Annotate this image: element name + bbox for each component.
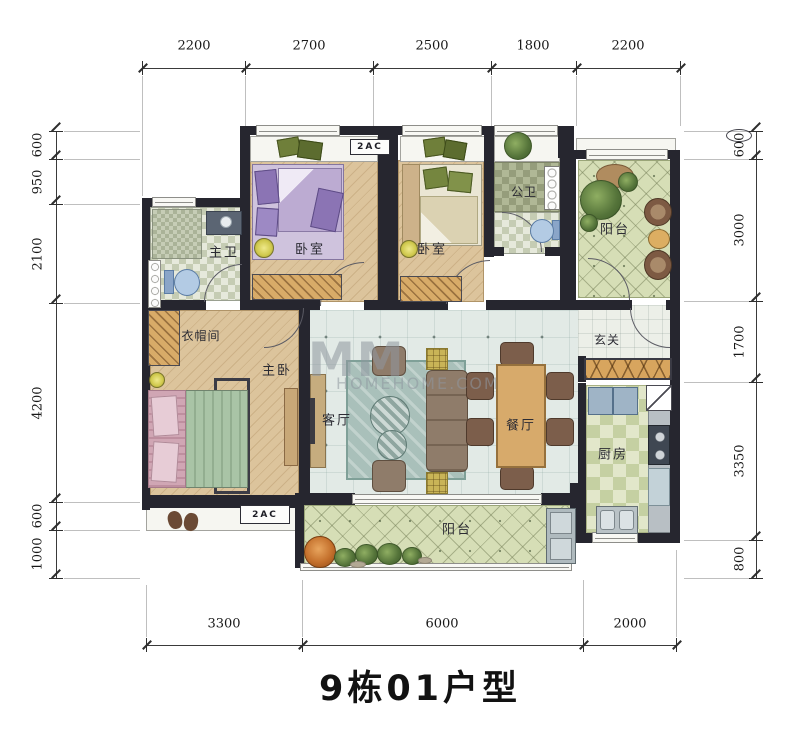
dim-line-top <box>142 68 680 69</box>
dim-extension <box>684 540 750 541</box>
stool-icon <box>254 238 274 258</box>
dim-tick <box>373 61 374 75</box>
dim-left-5: 600 <box>31 504 46 529</box>
dim-tick <box>245 61 246 75</box>
sink-basin-icon <box>600 510 615 530</box>
dim-extension <box>684 578 750 579</box>
dim-bottom-3: 2000 <box>613 617 646 632</box>
dining-chair <box>500 342 534 366</box>
watermark-site: HOMEHOME.COM <box>336 374 500 393</box>
dim-top-4: 1800 <box>516 39 549 54</box>
dim-tick <box>49 131 63 132</box>
label-cloakroom: 衣帽间 <box>181 330 220 342</box>
wall-segment <box>558 126 574 158</box>
dim-tick <box>680 61 681 75</box>
wall-segment <box>486 300 564 310</box>
wall-segment <box>484 126 494 257</box>
dim-left-6: 1000 <box>31 537 46 570</box>
dim-right-5: 800 <box>733 547 748 572</box>
dim-left-3: 2100 <box>31 237 46 270</box>
toilet-icon <box>530 219 554 243</box>
dim-right-2: 3000 <box>733 213 748 246</box>
stool-icon <box>400 240 418 258</box>
toilet-icon <box>174 269 200 296</box>
stone-icon <box>350 561 366 568</box>
sliding-door <box>352 494 542 504</box>
dim-tick <box>749 301 763 302</box>
ac-label-top: 2AC <box>350 139 390 155</box>
fridge <box>588 387 638 415</box>
dim-extension <box>64 131 140 132</box>
pillow <box>423 166 450 189</box>
dim-extension <box>146 585 147 637</box>
dim-extension <box>64 159 140 160</box>
lamp-icon <box>149 372 165 388</box>
wardrobe <box>252 274 342 300</box>
dim-tick <box>49 502 63 503</box>
sink-basin-icon <box>619 510 634 530</box>
window <box>152 197 196 207</box>
floor-plan-canvas: 2AC 2AC 主卫 卧室 卧室 公卫 阳台 衣帽间 主卧 客厅 餐厅 玄关 厨… <box>0 0 800 745</box>
window <box>586 149 668 160</box>
label-master-bedroom: 主卧 <box>262 365 292 378</box>
dim-tick <box>749 382 763 383</box>
label-bedroom-a: 卧室 <box>295 244 325 257</box>
dim-extension <box>64 578 140 579</box>
dim-extension <box>576 76 577 126</box>
dining-chair <box>466 418 494 446</box>
cushion <box>443 139 468 161</box>
dining-table <box>496 364 546 468</box>
dim-left-1: 600 <box>31 133 46 158</box>
laundry-stack <box>544 166 560 210</box>
dim-tick <box>749 540 763 541</box>
label-entry-balcony: 阳台 <box>600 224 630 237</box>
dim-tick <box>749 578 763 579</box>
dim-extension <box>680 76 681 126</box>
cloak-wardrobe <box>148 310 180 366</box>
dim-extension <box>583 580 584 637</box>
dim-left-2: 950 <box>31 170 46 195</box>
tv-icon <box>310 398 315 444</box>
dim-left-4: 4200 <box>31 386 46 419</box>
side-table <box>426 472 448 494</box>
pillow <box>254 169 279 205</box>
label-kitchen: 厨房 <box>598 449 628 462</box>
dim-line-bottom <box>146 645 676 646</box>
pillow <box>447 171 473 193</box>
dim-tick <box>146 638 147 652</box>
window <box>256 125 340 136</box>
water-heater-icon <box>646 385 672 411</box>
dim-tick <box>676 638 677 652</box>
dim-extension <box>142 76 143 196</box>
wall-segment <box>545 247 562 256</box>
rattan-chair <box>644 250 672 280</box>
dim-top-2: 2700 <box>292 39 325 54</box>
label-dining-room: 餐厅 <box>506 420 536 433</box>
plant-icon <box>504 132 532 160</box>
dim-top-1: 2200 <box>177 39 210 54</box>
dim-top-3: 2500 <box>415 39 448 54</box>
bed-rail <box>402 164 420 246</box>
kitchen-appliance <box>648 468 670 506</box>
dim-tick <box>576 61 577 75</box>
toilet-tank <box>164 270 174 294</box>
towel-shelf <box>148 260 161 308</box>
dining-chair <box>546 372 574 400</box>
dim-tick <box>491 61 492 75</box>
pillow <box>151 441 180 483</box>
dim-extension <box>64 204 140 205</box>
dim-top-5: 2200 <box>611 39 644 54</box>
wardrobe <box>400 276 462 302</box>
dim-tick <box>49 530 63 531</box>
sink-basin-icon <box>550 512 572 534</box>
dim-extension <box>64 502 140 503</box>
wall-segment <box>560 156 576 310</box>
wall-segment <box>562 300 632 310</box>
dim-line-right <box>756 131 757 578</box>
dim-right-3: 1700 <box>733 325 748 358</box>
label-guest-bath: 公卫 <box>511 186 537 198</box>
dining-chair <box>500 466 534 490</box>
cabinet-door <box>550 538 572 560</box>
pillow <box>151 395 180 437</box>
label-bedroom-b: 卧室 <box>417 244 447 257</box>
side-table <box>426 348 448 370</box>
dim-tick <box>583 638 584 652</box>
dim-extension <box>302 580 303 637</box>
dim-bottom-1: 3300 <box>207 617 240 632</box>
dresser <box>284 388 298 466</box>
label-master-bath: 主卫 <box>209 247 239 260</box>
dim-extension <box>684 301 750 302</box>
wall-segment <box>364 300 400 310</box>
sink-basin-icon <box>220 216 232 228</box>
cushion <box>297 139 323 160</box>
bed-quilt <box>420 196 478 244</box>
stove <box>648 425 670 465</box>
armchair <box>372 460 406 492</box>
dim-tick <box>142 61 143 75</box>
coffee-table <box>377 430 407 460</box>
round-table <box>648 229 670 249</box>
dim-tick <box>749 159 763 160</box>
plan-title: 9栋01户型 <box>319 660 521 711</box>
label-living-room: 客厅 <box>322 415 352 428</box>
plant-icon <box>618 172 638 192</box>
plant-icon <box>377 543 402 565</box>
stone-icon <box>418 557 432 564</box>
dim-bottom-2: 6000 <box>425 617 458 632</box>
label-south-balcony: 阳台 <box>442 524 472 537</box>
pillow <box>255 207 279 236</box>
dim-extension <box>684 159 750 160</box>
window <box>402 125 482 136</box>
dim-tick <box>49 578 63 579</box>
dim-tick <box>49 159 63 160</box>
dim-extension <box>245 76 246 126</box>
dim-extension <box>676 550 677 637</box>
plant-icon <box>580 214 598 232</box>
wall-segment <box>295 505 304 568</box>
dim-right-4: 3350 <box>733 444 748 477</box>
wall-segment <box>578 383 586 487</box>
dim-tick <box>49 303 63 304</box>
shoe-cabinet <box>584 358 672 380</box>
label-foyer: 玄关 <box>594 334 620 346</box>
orange-plant-icon <box>304 536 336 568</box>
dim-extension <box>684 382 750 383</box>
dim-tick <box>49 204 63 205</box>
rattan-chair <box>644 198 672 226</box>
dim-tick <box>749 131 763 132</box>
shower-area <box>152 209 202 259</box>
dim-tick <box>302 638 303 652</box>
wall-segment <box>295 493 355 505</box>
dining-chair <box>546 418 574 446</box>
dim-right-1: 600 <box>733 133 748 158</box>
dim-extension <box>373 76 374 126</box>
ac-label-bottom: 2AC <box>240 505 290 524</box>
dim-extension <box>491 76 492 126</box>
dim-extension <box>64 530 140 531</box>
dim-extension <box>64 303 140 304</box>
